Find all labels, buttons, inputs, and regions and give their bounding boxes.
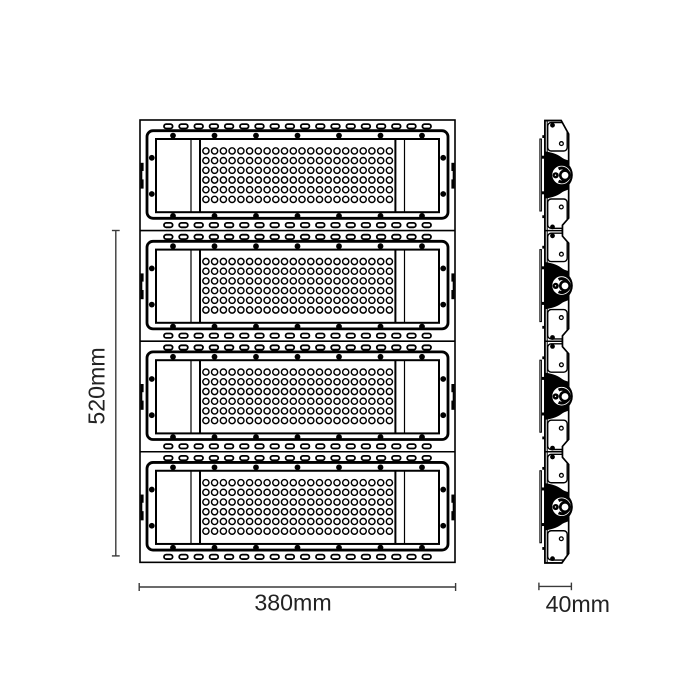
svg-text:520mm: 520mm [84, 347, 110, 424]
svg-text:40mm: 40mm [546, 591, 610, 617]
svg-text:380mm: 380mm [254, 589, 331, 615]
